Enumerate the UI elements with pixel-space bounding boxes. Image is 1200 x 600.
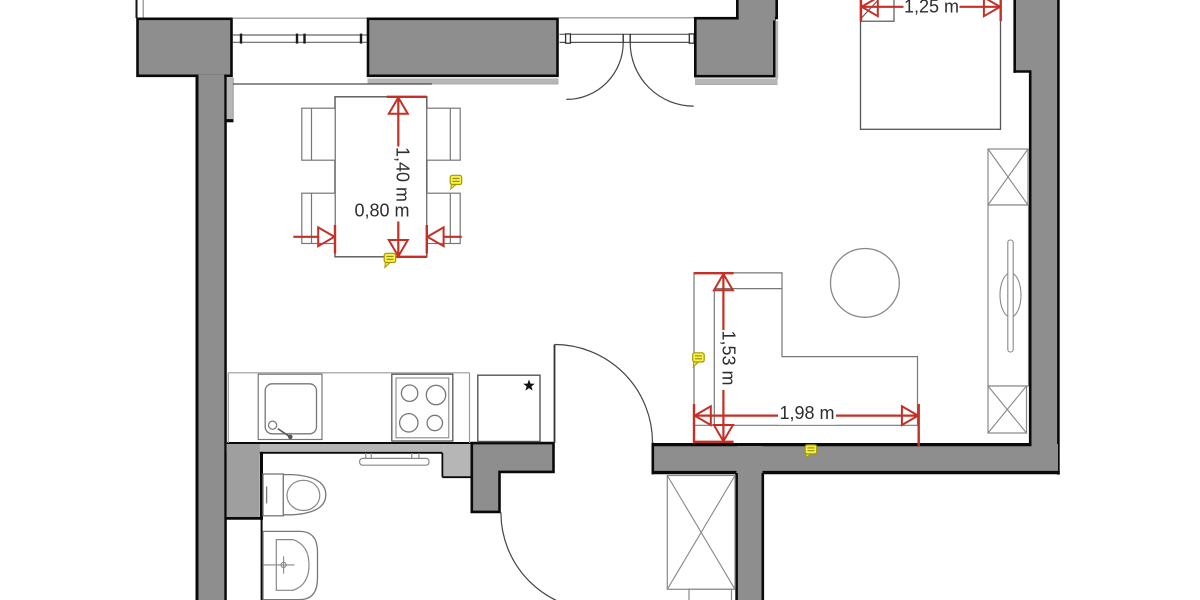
svg-text:1,53 m: 1,53 m [719,330,739,385]
svg-text:1,40 m: 1,40 m [393,147,413,202]
svg-text:0,80 m: 0,80 m [354,200,409,220]
svg-text:1,98 m: 1,98 m [779,403,834,423]
svg-text:1,25 m: 1,25 m [904,0,959,17]
